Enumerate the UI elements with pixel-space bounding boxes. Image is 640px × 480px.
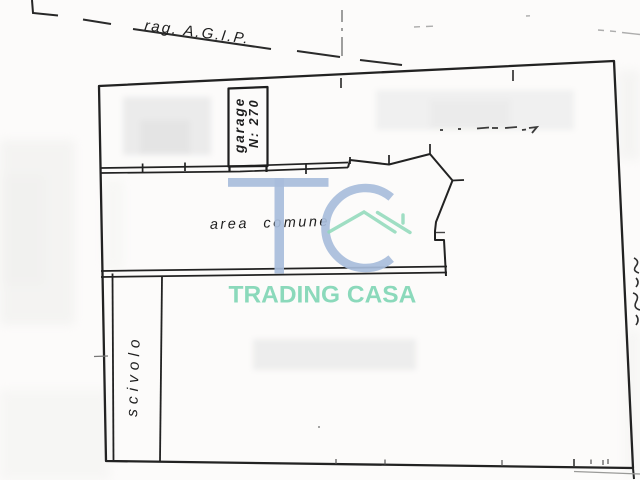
svg-text:garage: garage [232,97,247,154]
svg-text:scivolo: scivolo [124,334,144,417]
svg-text:N: 270: N: 270 [247,98,261,148]
svg-text:TRADING CASA: TRADING CASA [229,282,417,309]
svg-text:area comune: area comune [210,214,331,233]
